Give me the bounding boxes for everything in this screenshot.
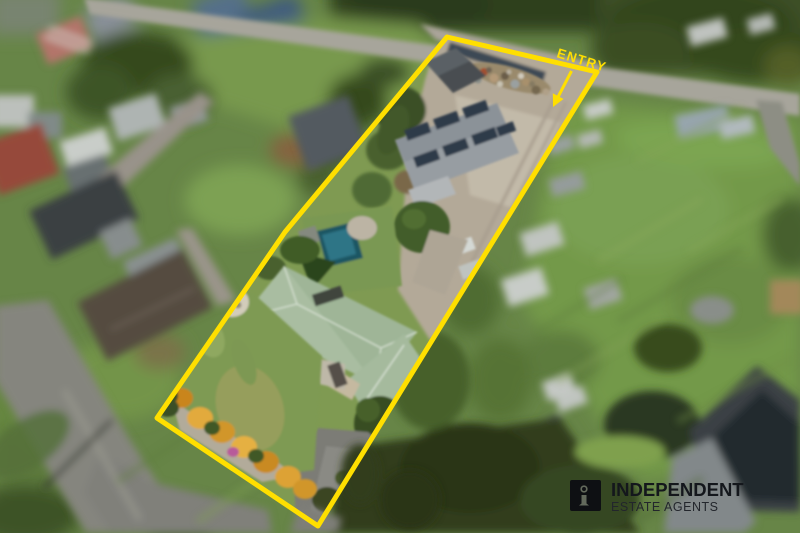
svg-text:ESTATE AGENTS: ESTATE AGENTS [611, 500, 718, 514]
svg-text:INDEPENDENT: INDEPENDENT [611, 479, 744, 500]
